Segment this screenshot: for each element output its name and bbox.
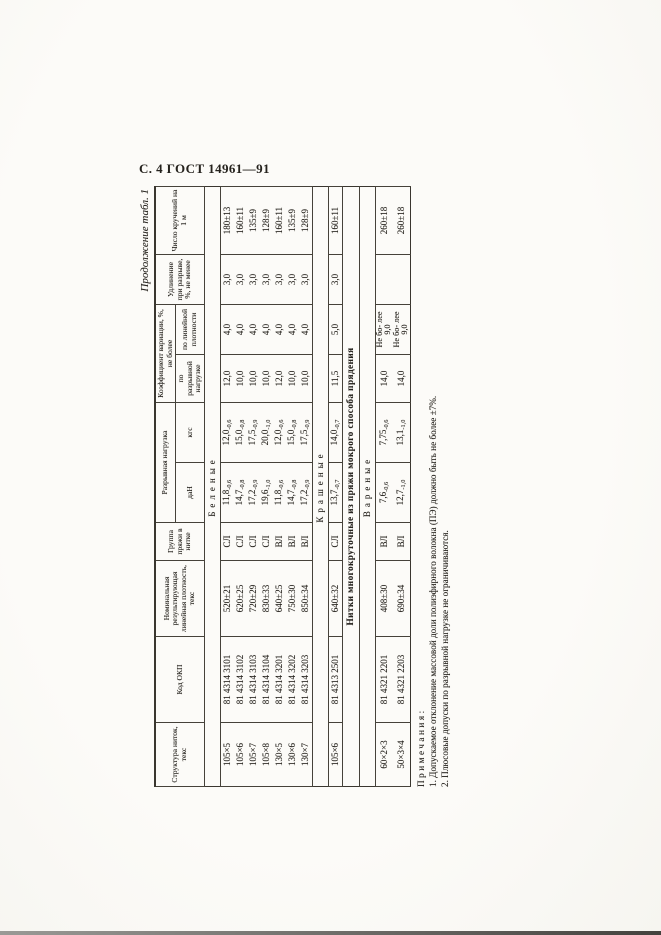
cell-twists: 160±11	[234, 186, 247, 254]
cell-yarn-group: СЛ	[247, 523, 260, 561]
table-row: 130×781 4314 3203850±34ВЛ17,2-0,917,5-0,…	[299, 186, 313, 786]
cell-okp: 81 4314 3103	[247, 637, 260, 723]
cell-elongation	[393, 254, 411, 304]
cell-load-kgs: 15,0-0,8	[234, 402, 247, 462]
cell-yarn-group: ВЛ	[273, 523, 286, 561]
cell-elongation: 3,0	[260, 254, 273, 304]
cell-yarn-group: ВЛ	[286, 523, 299, 561]
cell-twists: 128±9	[260, 186, 273, 254]
landscape-content: Продолжение табл. 1 Структура ниток, тек…	[139, 183, 475, 787]
cell-structure: 105×5	[220, 723, 234, 787]
cell-twists: 260±18	[375, 186, 393, 254]
cell-load-dan: 13,7-0,7	[328, 463, 342, 523]
scanned-page: С. 4 ГОСТ 14961—91 Продолжение табл. 1 С…	[0, 0, 661, 935]
cell-elongation: 3,0	[247, 254, 260, 304]
group-label-row: Крашеные	[312, 186, 328, 786]
cell-cv-density: 4,0	[273, 304, 286, 354]
cell-yarn-group: ВЛ	[393, 523, 411, 561]
cell-yarn-group: СЛ	[260, 523, 273, 561]
cell-okp: 81 4321 2203	[393, 637, 411, 723]
note-1-num: 1.	[428, 780, 438, 787]
table-row: 105×781 4314 3103720±29СЛ17,2-0,917,5-0,…	[247, 186, 260, 786]
group-label: Крашеные	[312, 186, 328, 786]
cell-okp: 81 4314 3104	[260, 637, 273, 723]
cell-load-dan: 17,2-0,9	[299, 463, 313, 523]
cell-twists: 160±11	[328, 186, 342, 254]
cell-load-dan: 11,8-0,6	[273, 463, 286, 523]
cell-structure: 130×7	[299, 723, 313, 787]
cell-yarn-group: СЛ	[220, 523, 234, 561]
cell-twists: 128±9	[299, 186, 313, 254]
table-row: 105×681 4314 3102620±25СЛ14,7-0,815,0-0,…	[234, 186, 247, 786]
cell-cv-load: 10,0	[247, 354, 260, 402]
cell-structure: 130×5	[273, 723, 286, 787]
cell-elongation: 3,0	[328, 254, 342, 304]
cell-load-dan: 17,2-0,9	[247, 463, 260, 523]
cell-cv-density: 4,0	[286, 304, 299, 354]
cell-load-kgs: 7,75-0,6	[375, 402, 393, 462]
note-2-text: Плюсовые допуски по разрывной нагрузке н…	[440, 530, 450, 778]
col-structure: Структура ниток, текс	[155, 723, 204, 787]
cell-nominal: 690±34	[393, 561, 411, 637]
cell-elongation: 3,0	[234, 254, 247, 304]
cell-load-dan: 14,7-0,8	[286, 463, 299, 523]
table-header: Структура ниток, текс Код ОКП Номинальна…	[155, 186, 204, 786]
col-cv-density: по линейной плотности	[176, 304, 205, 354]
table-row: 105×881 4314 3104830±33СЛ19,6-1,020,0-1,…	[260, 186, 273, 786]
scan-bottom-edge	[0, 931, 661, 935]
col-elongation: Удлинение при разрыве, %, не менее	[155, 254, 204, 304]
cell-cv-load: 11,5	[328, 354, 342, 402]
cell-nominal: 520±21	[220, 561, 234, 637]
table-row: 60×2×381 4321 2201408±30ВЛ7,6-0,67,75-0,…	[375, 186, 393, 786]
section-label: Нитки многокруточные из пряжи мокрого сп…	[342, 186, 359, 786]
cell-twists: 160±11	[273, 186, 286, 254]
cell-elongation	[375, 254, 393, 304]
group-label: Беленые	[204, 186, 220, 786]
cell-structure: 130×6	[286, 723, 299, 787]
cell-okp: 81 4314 3202	[286, 637, 299, 723]
cell-elongation: 3,0	[299, 254, 313, 304]
group-label-row: Беленые	[204, 186, 220, 786]
table-row: 50×3×481 4321 2203690±34ВЛ12,7-1,013,1-1…	[393, 186, 411, 786]
table-body: Беленые105×581 4314 3101520±21СЛ11,8-0,6…	[204, 186, 410, 786]
table-continuation-caption: Продолжение табл. 1	[139, 189, 151, 787]
cell-load-dan: 7,6-0,6	[375, 463, 393, 523]
cell-nominal: 640±25	[273, 561, 286, 637]
cell-structure: 105×6	[234, 723, 247, 787]
notes-block: Примечания: 1. Допускаемое отклонение ма…	[416, 191, 452, 787]
cell-elongation: 3,0	[220, 254, 234, 304]
cell-nominal: 720±29	[247, 561, 260, 637]
col-cv-load: по разрывной нагрузке	[176, 354, 205, 402]
cell-load-kgs: 20,0-1,0	[260, 402, 273, 462]
cell-yarn-group: ВЛ	[375, 523, 393, 561]
col-yarn-group: Группа пряжи в нитке	[155, 523, 204, 561]
cell-nominal: 640±32	[328, 561, 342, 637]
cell-cv-load: 10,0	[286, 354, 299, 402]
cell-yarn-group: ВЛ	[299, 523, 313, 561]
notes-label: Примечания:	[416, 708, 426, 787]
cell-nominal: 750±30	[286, 561, 299, 637]
cell-yarn-group: СЛ	[234, 523, 247, 561]
col-okp: Код ОКП	[155, 637, 204, 723]
col-twists: Число кручений на 1 м	[155, 186, 204, 254]
cell-structure: 105×8	[260, 723, 273, 787]
cell-cv-load: 10,0	[299, 354, 313, 402]
note-item-2: 2. Плюсовые допуски по разрывной нагрузк…	[440, 191, 452, 787]
cell-cv-load: 10,0	[260, 354, 273, 402]
group-label: Вареные	[359, 186, 375, 786]
cell-okp: 81 4314 3101	[220, 637, 234, 723]
cell-load-kgs: 13,1-1,0	[393, 402, 411, 462]
cell-elongation: 3,0	[273, 254, 286, 304]
group-label-row: Вареные	[359, 186, 375, 786]
cell-load-kgs: 17,5-0,9	[247, 402, 260, 462]
gost-table: Структура ниток, текс Код ОКП Номинальна…	[154, 186, 411, 787]
cell-load-kgs: 12,0-0,6	[273, 402, 286, 462]
cell-cv-load: 14,0	[375, 354, 393, 402]
col-variation-coefficient: Коэффициент вариации, %, не более	[155, 304, 176, 402]
cell-nominal: 408±30	[375, 561, 393, 637]
section-header-row: Нитки многокруточные из пряжи мокрого сп…	[342, 186, 359, 786]
cell-elongation: 3,0	[286, 254, 299, 304]
note-item-1: 1. Допускаемое отклонение массовой доли …	[428, 191, 440, 787]
cell-cv-density: Не бо- лее 9,0	[393, 304, 411, 354]
cell-load-dan: 12,7-1,0	[393, 463, 411, 523]
col-breaking-load: Разрывная нагрузка	[155, 402, 176, 522]
cell-nominal: 620±25	[234, 561, 247, 637]
cell-load-dan: 11,8-0,6	[220, 463, 234, 523]
cell-cv-density: 4,0	[234, 304, 247, 354]
cell-cv-load: 10,0	[234, 354, 247, 402]
cell-cv-density: 4,0	[260, 304, 273, 354]
cell-structure: 60×2×3	[375, 723, 393, 787]
cell-okp: 81 4321 2201	[375, 637, 393, 723]
cell-nominal: 850±34	[299, 561, 313, 637]
table-row: 105×581 4314 3101520±21СЛ11,8-0,612,0-0,…	[220, 186, 234, 786]
cell-cv-load: 12,0	[220, 354, 234, 402]
table-row: 130×681 4314 3202750±30ВЛ14,7-0,815,0-0,…	[286, 186, 299, 786]
cell-okp: 81 4314 3201	[273, 637, 286, 723]
cell-load-dan: 14,7-0,8	[234, 463, 247, 523]
cell-okp: 81 4314 3203	[299, 637, 313, 723]
cell-cv-density: 4,0	[247, 304, 260, 354]
cell-load-kgs: 15,0-0,8	[286, 402, 299, 462]
cell-cv-load: 14,0	[393, 354, 411, 402]
cell-load-kgs: 14,0-0,7	[328, 402, 342, 462]
cell-okp: 81 4314 3102	[234, 637, 247, 723]
cell-twists: 135±9	[247, 186, 260, 254]
cell-cv-load: 12,0	[273, 354, 286, 402]
cell-cv-density: 4,0	[299, 304, 313, 354]
cell-load-dan: 19,6-1,0	[260, 463, 273, 523]
cell-load-kgs: 12,0-0,6	[220, 402, 234, 462]
cell-structure: 105×6	[328, 723, 342, 787]
cell-nominal: 830±33	[260, 561, 273, 637]
cell-cv-density: Не бо- лее 9,0	[375, 304, 393, 354]
cell-cv-density: 5,0	[328, 304, 342, 354]
cell-twists: 135±9	[286, 186, 299, 254]
col-dan: даН	[176, 463, 205, 523]
page-header: С. 4 ГОСТ 14961—91	[139, 161, 270, 177]
cell-structure: 105×7	[247, 723, 260, 787]
table-row: 105×681 4313 2501640±32СЛ13,7-0,714,0-0,…	[328, 186, 342, 786]
cell-okp: 81 4313 2501	[328, 637, 342, 723]
cell-twists: 180±13	[220, 186, 234, 254]
cell-cv-density: 4,0	[220, 304, 234, 354]
rotated-table-area: Продолжение табл. 1 Структура ниток, тек…	[139, 183, 475, 787]
table-row: 130×581 4314 3201640±25ВЛ11,8-0,612,0-0,…	[273, 186, 286, 786]
note-2-num: 2.	[440, 780, 450, 787]
note-1-text: Допускаемое отклонение массовой доли пол…	[428, 396, 438, 778]
col-nominal: Номинальная результирующая линейная плот…	[155, 561, 204, 637]
cell-structure: 50×3×4	[393, 723, 411, 787]
cell-twists: 260±18	[393, 186, 411, 254]
cell-yarn-group: СЛ	[328, 523, 342, 561]
col-kgs: кгс	[176, 402, 205, 462]
cell-load-kgs: 17,5-0,9	[299, 402, 313, 462]
